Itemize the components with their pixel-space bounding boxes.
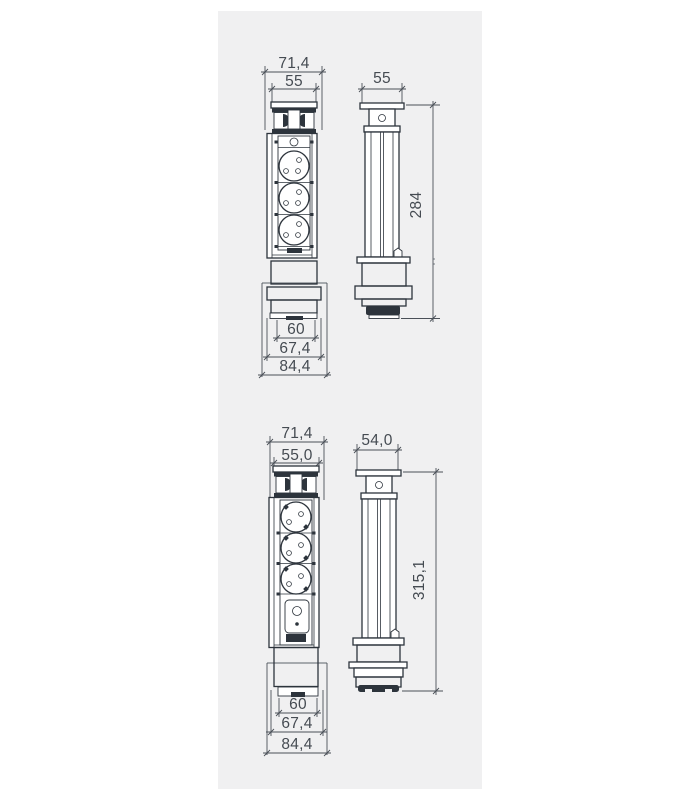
base-nub — [286, 316, 303, 320]
dim-label-base-mid: 67,4 — [281, 715, 312, 732]
dim-label-cap-width: 55,0 — [281, 447, 312, 464]
usb-housing — [285, 600, 309, 633]
dim-label-base-outer: 84,4 — [281, 736, 312, 753]
cap-and-handle — [273, 466, 319, 498]
socket-tower — [269, 498, 319, 648]
dim-label-base-inner: 60 — [289, 696, 307, 713]
handle-bottom-band — [272, 129, 316, 134]
top-cap-plate — [356, 470, 401, 476]
head-flange — [364, 126, 400, 132]
dim-label-height: 284 — [408, 192, 425, 219]
dim-label-cap-width: 55 — [285, 73, 303, 90]
head-block — [366, 476, 392, 495]
tower-bottom-latch — [286, 634, 306, 642]
dim-label-outer-width: 71,4 — [281, 425, 312, 442]
base-cap — [366, 306, 400, 315]
dim-label-outer-width: 71,4 — [278, 55, 309, 72]
base-flange — [353, 638, 404, 645]
tower-bottom-latch — [287, 248, 302, 253]
base-body — [354, 668, 403, 677]
usb-led — [295, 622, 299, 626]
dim-label-cap-width: 54,0 — [361, 432, 392, 449]
base-plate — [369, 315, 399, 319]
head-flange — [361, 493, 397, 499]
dim-label-base-mid: 67,4 — [279, 340, 310, 357]
top-cap-plate — [271, 102, 317, 108]
top-cap-plate — [273, 466, 319, 472]
usb-module — [285, 600, 309, 633]
top-cap-plate — [360, 103, 404, 109]
column — [362, 499, 399, 638]
base-foot — [365, 689, 372, 692]
base-flange — [357, 257, 410, 263]
drawing-canvas: 71,4 55 — [0, 0, 700, 800]
handle-grip — [288, 110, 300, 129]
image-panel — [218, 11, 482, 789]
technical-drawing-page: 71,4 55 — [0, 0, 700, 800]
dim-label-cap-width: 55 — [373, 70, 391, 87]
handle-grip — [290, 474, 302, 493]
socket-tower — [267, 134, 317, 259]
handle-bottom-band — [274, 493, 318, 498]
dim-label-base-inner: 60 — [287, 321, 305, 338]
head-block — [369, 109, 395, 128]
base-foot — [385, 689, 392, 692]
cap-and-handle — [271, 102, 317, 134]
dim-label-base-outer: 84,4 — [279, 358, 310, 375]
base-cap — [358, 685, 399, 692]
dim-label-height: 315,1 — [411, 560, 428, 600]
socket-panel — [278, 136, 310, 250]
column — [365, 132, 402, 257]
mounting-ring — [349, 662, 407, 668]
